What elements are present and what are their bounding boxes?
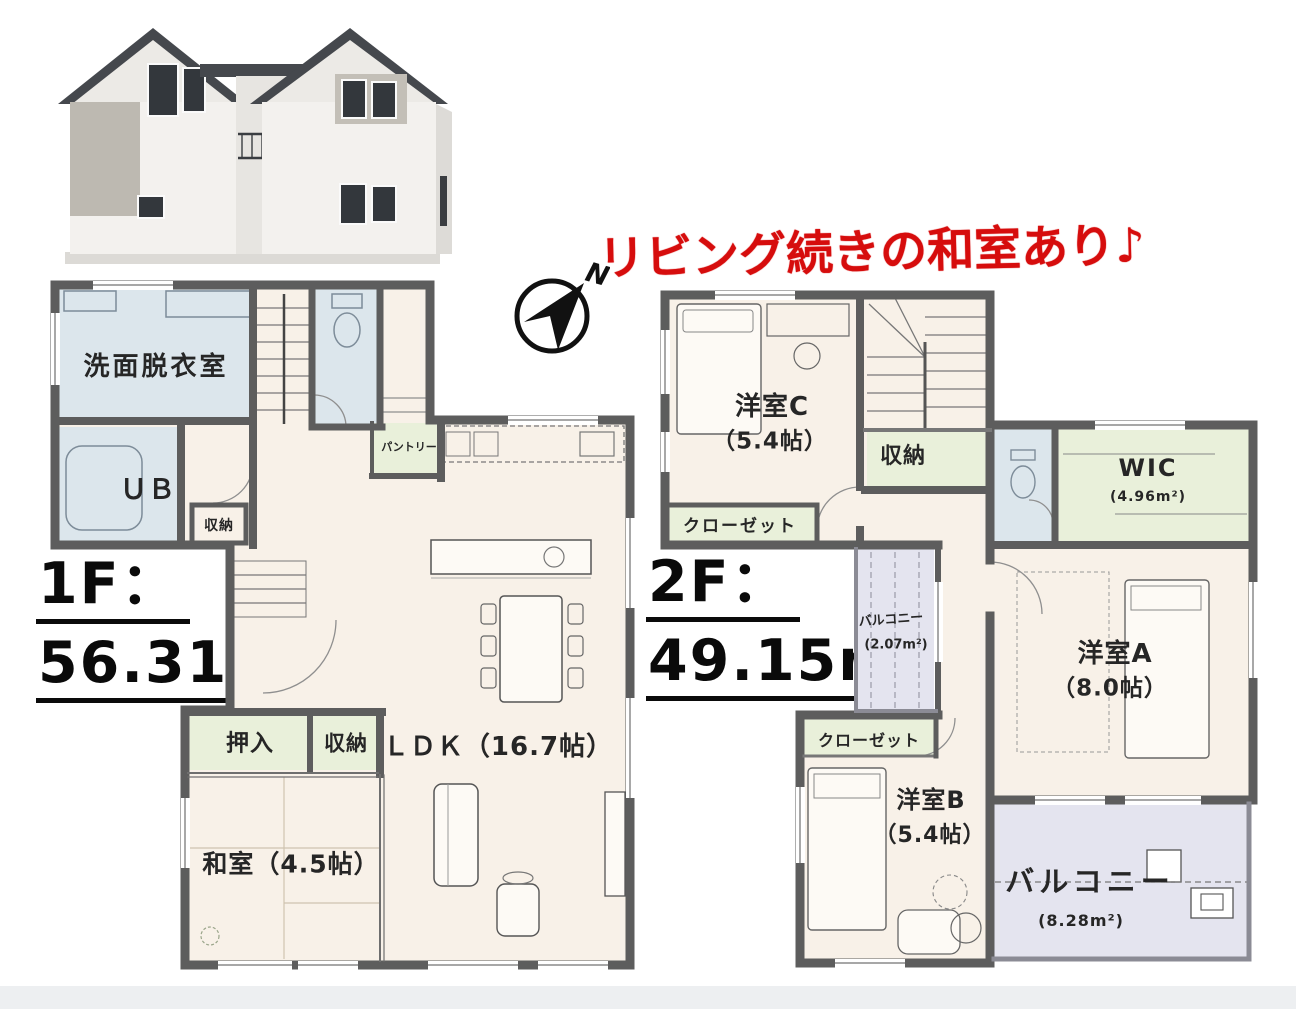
room-wic [1057,429,1251,541]
label-washroom: 洗面脱衣室 [83,354,228,380]
label-bedroom-b-size: （5.4帖） [875,825,986,847]
label-storage-2f: 収納 [880,446,926,468]
bottom-margin-strip [0,986,1296,1009]
label-pantry: パントリー [381,442,437,453]
label-unit-bath: ＵＢ [120,477,176,504]
label-bedroom-a: 洋室A [1077,641,1152,667]
label-oshiire: 押入 [226,733,274,756]
floorplan-flyer: N リビング続きの和室あり♪ 1F： 56.31m2 2F： 49.15m2 [0,0,1296,1009]
room-toilet-2f [993,429,1055,541]
label-balcony-large: バルコニー [1005,868,1174,897]
label-balcony-small-size: (2.07m²) [864,639,927,652]
label-bedroom-b: 洋室B [896,788,965,812]
label-bedroom-c: 洋室C [735,394,809,420]
label-closet-b: クローゼット [818,733,920,749]
label-wic-size: (4.96m²) [1110,490,1186,504]
label-bedroom-c-size: （5.4帖） [712,431,828,454]
label-storage-1f: 収納 [324,734,368,755]
label-balcony-large-size: (8.28m²) [1038,913,1124,929]
room-toilet-1f [314,289,378,425]
label-wic: WIC [1118,456,1177,480]
label-hall-storage: 収納 [204,519,234,533]
house-rendering [50,6,455,274]
label-bedroom-a-size: （8.0帖） [1052,678,1168,701]
headline-text: リビング続きの和室あり♪ [597,206,1146,288]
label-closet-c: クローゼット [683,519,797,536]
room-bedroom-a [990,545,1253,800]
label-ldk: ＬＤＫ（16.7帖） [383,734,613,760]
label-washitsu: 和室（4.5帖） [202,852,379,877]
